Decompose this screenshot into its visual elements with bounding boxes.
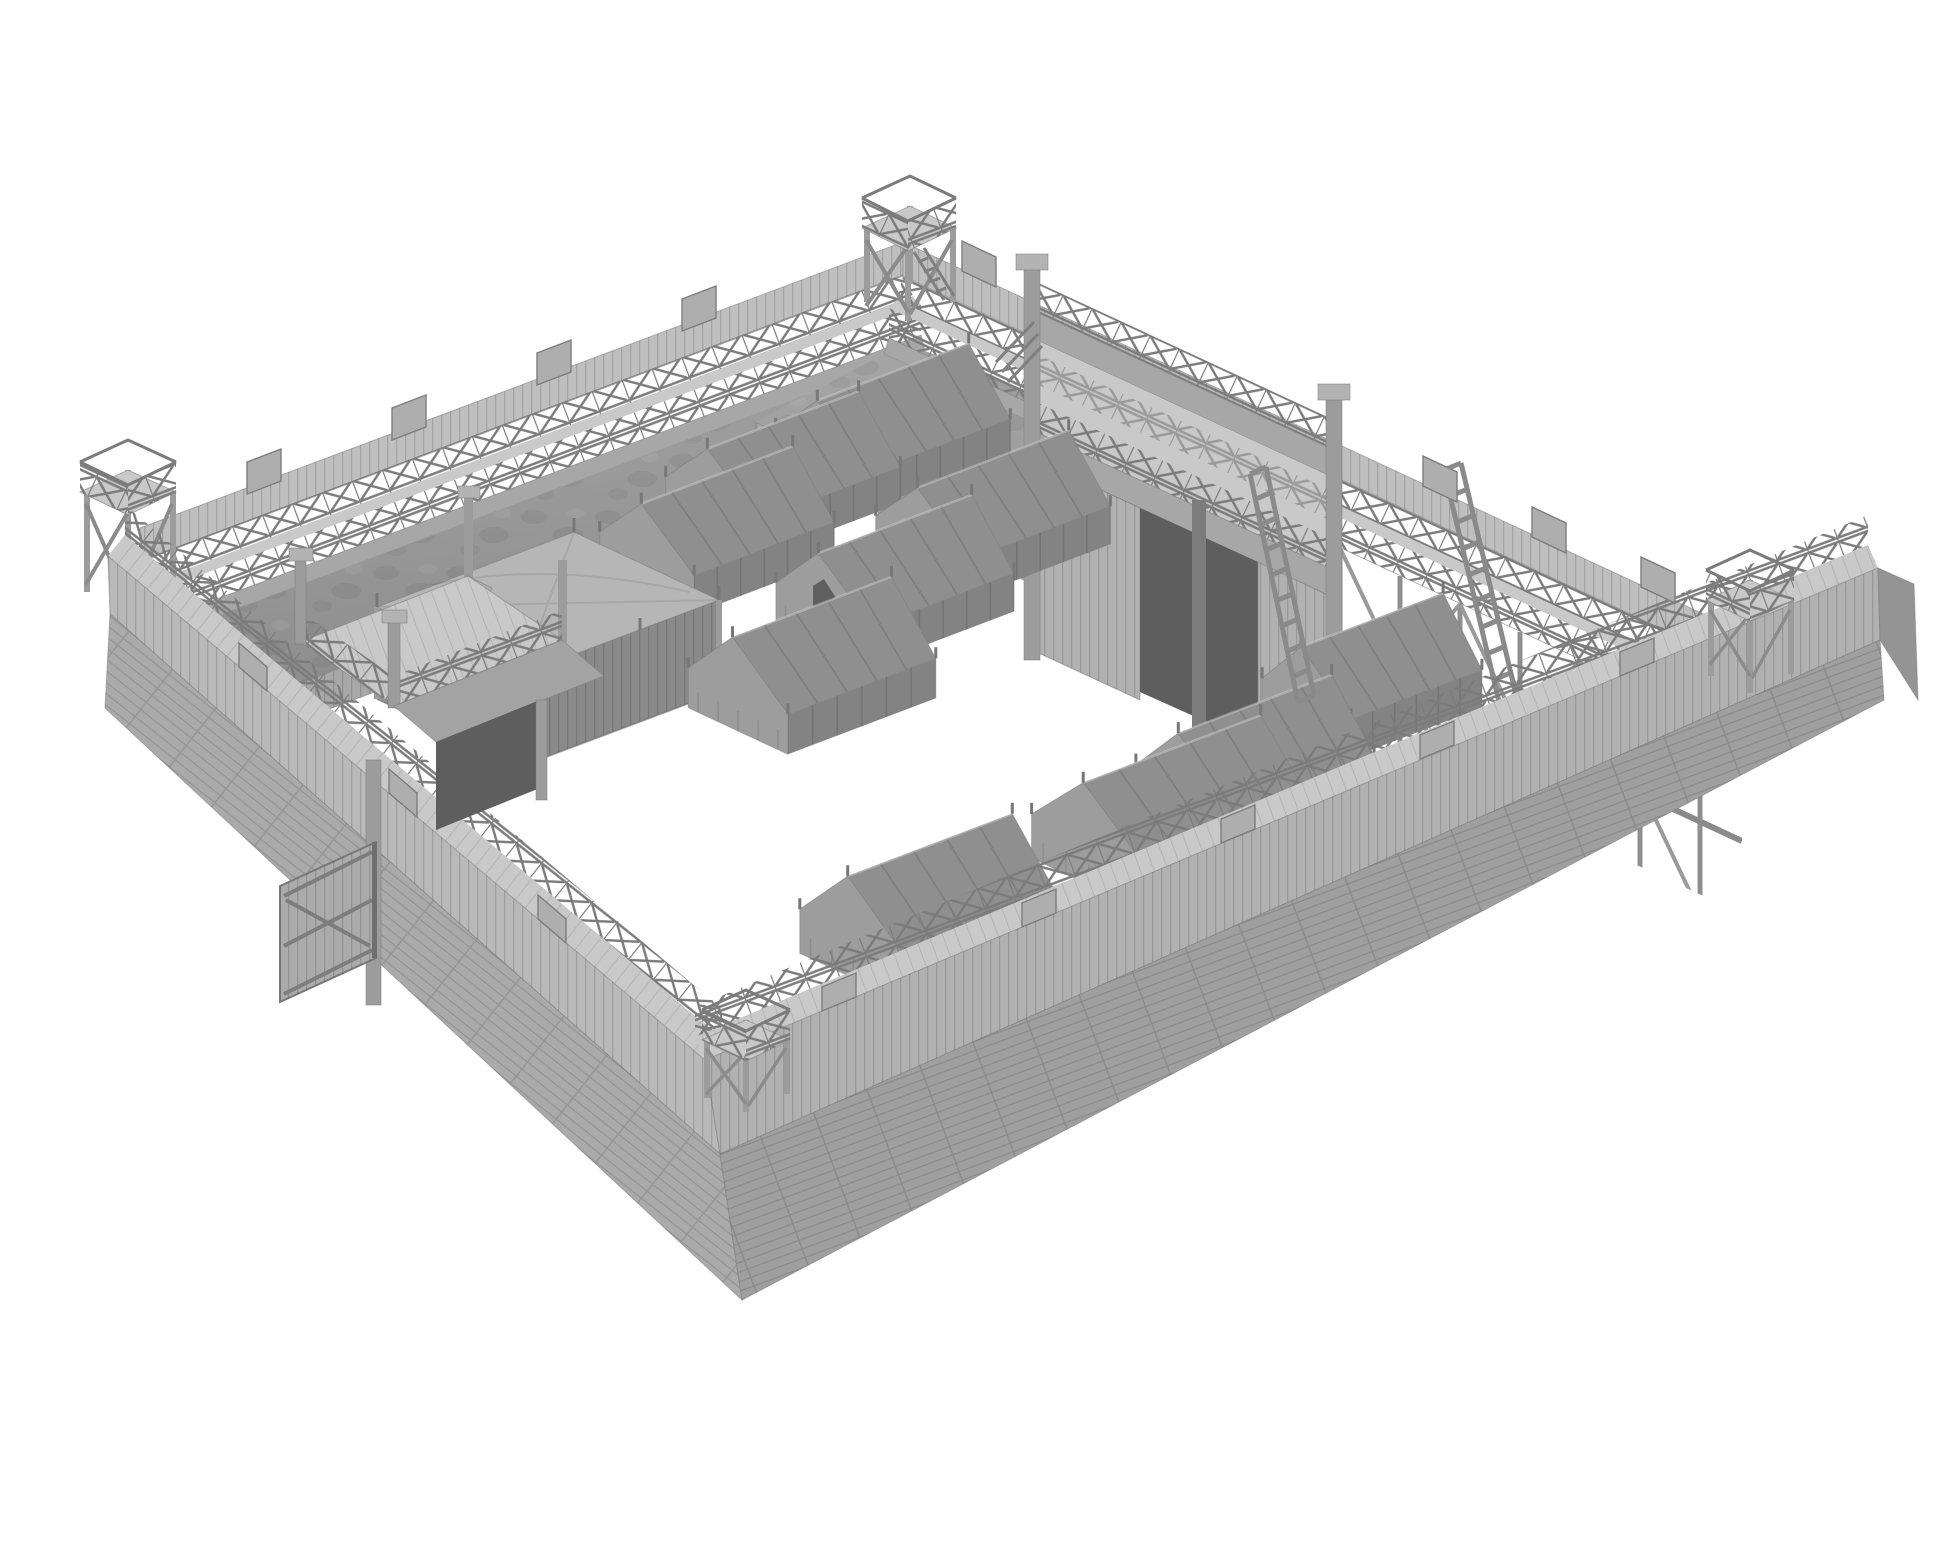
gatehouse-post-cap [382,610,407,623]
gatehouse-post-cap [1318,384,1350,400]
gatehouse-ground-post [536,700,547,800]
gatehouse-post [295,560,306,644]
render-canvas [0,0,1946,1557]
fort-render [0,0,1946,1557]
gatehouse-post [388,622,400,708]
gate-door-hinge-edge [372,842,377,958]
gatehouse-post-cap [1016,254,1048,270]
gatehouse-post-cap [458,486,480,498]
gatehouse-center-post [1192,500,1206,748]
tower-leg [864,228,870,302]
east-end-facet [1878,568,1918,700]
gatehouse-rear-post [464,498,473,578]
tower-leg [1747,621,1753,693]
gatehouse-post-cap [289,548,313,561]
